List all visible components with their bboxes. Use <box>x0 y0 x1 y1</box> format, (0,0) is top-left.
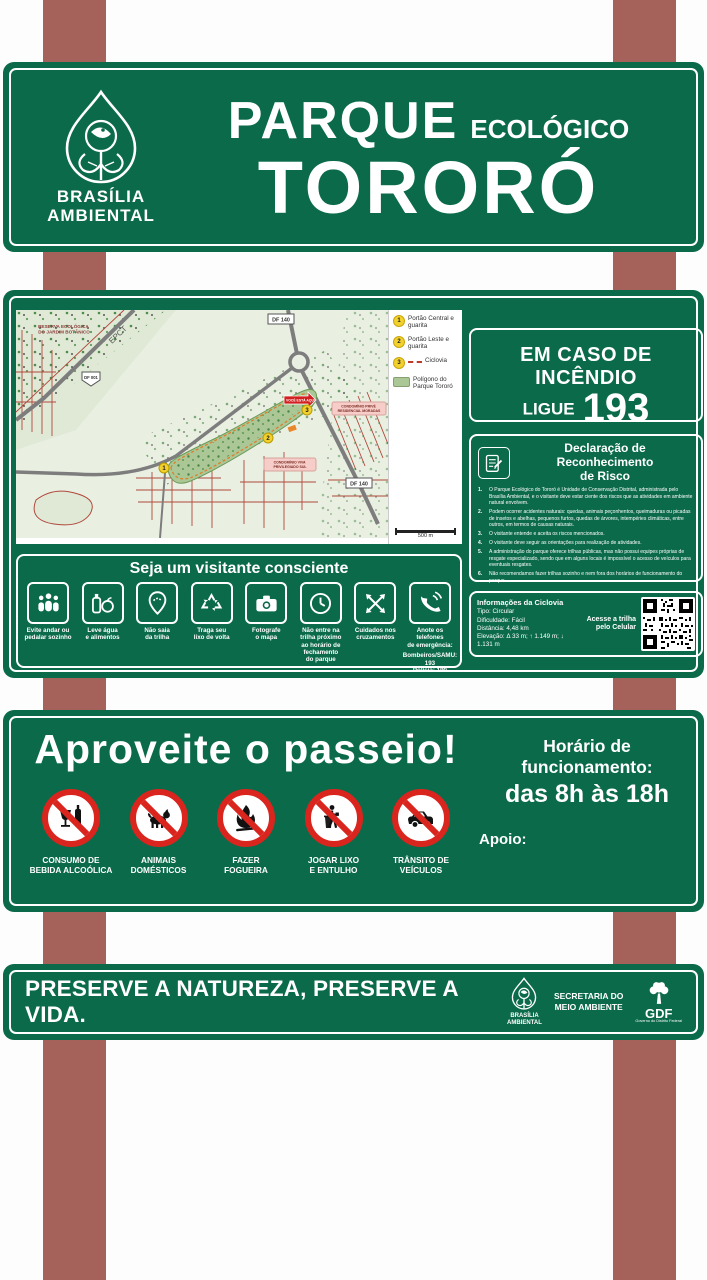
map-scalebar: 500 m <box>395 530 456 539</box>
fire-emergency-title: EM CASO DE INCÊNDIO <box>471 344 701 390</box>
brand-line1: BRASÍLIA <box>47 188 155 207</box>
emergency-number-policia: Polícia: 190 <box>403 667 457 675</box>
df140-badge-top: DF 140 <box>268 314 294 324</box>
enjoy-title: Aproveite o passeio! <box>21 726 471 773</box>
map-legend: 1 Portão Central e guarita 2 Portão Lest… <box>388 310 460 544</box>
rules-panel: Aproveite o passeio! CONSUMO DE BEBIDA A… <box>3 710 704 912</box>
fire-emergency-box: EM CASO DE INCÊNDIO LIGUE193 <box>469 328 703 422</box>
legend-item-portao-central: 1 Portão Central e guarita <box>393 315 457 329</box>
droplet-bird-logo-icon <box>507 977 541 1011</box>
droplet-bird-logo-icon <box>51 88 151 188</box>
park-map: VOCÊ ESTÁ AQUI 1 2 3 RESERVA ECOLÓGICA D… <box>16 310 462 544</box>
recycle-icon <box>198 590 225 617</box>
crossings-icon <box>362 590 389 617</box>
gdf-tagline: Governo do Distrito Federal <box>635 1020 682 1024</box>
tip-crossings: Cuidados nos cruzamentos <box>349 582 401 675</box>
ciclovia-dificuldade: Dificuldade: Fácil <box>477 617 579 625</box>
emergency-number-bombeiros: Bombeiros/SAMU: 193 <box>403 652 457 668</box>
emergency-number: 193 <box>583 386 650 430</box>
info-panel: VOCÊ ESTÁ AQUI 1 2 3 RESERVA ECOLÓGICA D… <box>3 290 704 678</box>
park-title: PARQUE <box>228 92 459 150</box>
legend-marker-3: 3 <box>393 357 405 369</box>
tip-photo-map: Fotografe o mapa <box>240 582 292 675</box>
df140-badge-right: DF 140 <box>346 478 372 488</box>
svg-text:CONDOMÍNIO VIVA PR: CONDOMÍNIO VIVA PRIVILEGIADO SUL <box>273 460 307 469</box>
tip-recycle: Traga seu lixo de volta <box>186 582 238 675</box>
qr-code[interactable] <box>641 597 695 651</box>
ciclovia-tipo: Tipo: Circular <box>477 608 579 616</box>
camera-icon <box>253 590 280 617</box>
footer-brasilia-ambiental-logo: BRASÍLIA AMBIENTAL <box>507 977 542 1027</box>
visitor-tips-title: Seja um visitante consciente <box>22 560 456 578</box>
footer-brand1-label: BRASÍLIA AMBIENTAL <box>507 1013 542 1027</box>
ciclovia-distancia: Distância: 4,48 km <box>477 625 579 633</box>
park-subtitle: ECOLÓGICO <box>470 114 629 144</box>
svg-text:DF 140: DF 140 <box>350 482 368 488</box>
ciclovia-title: Informações da Ciclovia <box>477 598 579 608</box>
support-label: Apoio: <box>479 831 695 848</box>
group-icon <box>35 590 62 617</box>
brasilia-ambiental-logo: BRASÍLIA AMBIENTAL <box>11 88 191 225</box>
svg-text:VOCÊ ESTÁ AQUI: VOCÊ ESTÁ AQUI <box>286 398 315 403</box>
prohibition-pets: ANIMAIS DOMÉSTICOS <box>117 789 201 876</box>
legend-item-ciclovia: 3 Ciclovia <box>393 357 457 369</box>
opening-hours-value: das 8h às 18h <box>479 780 695 809</box>
legend-marker-1: 1 <box>393 315 405 327</box>
declaration-doc-icon <box>478 447 510 479</box>
polygon-swatch <box>393 377 410 387</box>
risk-declaration-box: Declaração de Reconhecimento de Risco 1.… <box>469 434 703 582</box>
preserve-message: PRESERVE A NATUREZA, PRESERVE A VIDA. <box>25 976 495 1028</box>
ciclovia-elevacao: Elevação: Δ 33 m; ↑ 1.149 m; ↓ 1.131 m <box>477 633 579 650</box>
no-pets-icon <box>144 803 174 833</box>
park-name: TORORÓ <box>191 153 666 223</box>
tip-stay-on-trail: Não saia da trilha <box>131 582 183 675</box>
stay-on-trail-icon <box>144 590 171 617</box>
clock-icon <box>307 590 334 617</box>
legend-item-poligono: Polígono do Parque Tororó <box>393 376 457 390</box>
risk-declaration-list: 1.O Parque Ecológico do Tororó é Unidade… <box>478 487 694 584</box>
ciclovia-info-box: Informações da Ciclovia Tipo: Circular D… <box>469 591 703 657</box>
tip-emergency-phones: Anote os telefones de emergência: Bombei… <box>404 582 456 675</box>
brand-line2: AMBIENTAL <box>47 207 155 226</box>
visitor-tips-box: Seja um visitante consciente Evite andar… <box>16 554 462 668</box>
no-fire-icon <box>231 803 261 833</box>
header-panel: BRASÍLIA AMBIENTAL PARQUEECOLÓGICO TOROR… <box>3 62 704 252</box>
dashed-line-sample <box>408 361 422 363</box>
opening-hours-label: Horário de funcionamento: <box>479 736 695 778</box>
risk-declaration-title: Declaração de Reconhecimento de Risco <box>516 442 694 483</box>
reserve-label: RESERVA ECOLÓGICA <box>38 322 89 329</box>
footer-secretaria-label: SECRETARIA DO MEIO AMBIENTE <box>554 991 623 1012</box>
condo-label-right: CONDOMÍNIO PRIVÊ RESIDENCIAL MORADAS <box>332 402 386 415</box>
prohibition-alcohol: CONSUMO DE BEBIDA ALCOÓLICA <box>29 789 113 876</box>
gdf-tree-icon <box>643 980 675 1006</box>
no-vehicles-icon <box>406 803 436 833</box>
prohibition-fire: FAZER FOGUEIRA <box>204 789 288 876</box>
footer-panel: PRESERVE A NATUREZA, PRESERVE A VIDA. BR… <box>3 964 704 1040</box>
tip-closing-time: Não entre na trilha próximo ao horário d… <box>295 582 347 675</box>
no-alcohol-icon <box>56 803 86 833</box>
phone-icon <box>416 590 443 617</box>
svg-text:RESERVA ECOLÓGICA DO: RESERVA ECOLÓGICA DO JARDIM BOTÂNICO <box>38 322 90 334</box>
footer-gdf-logo: GDF Governo do Distrito Federal <box>635 980 682 1024</box>
map-illustration: VOCÊ ESTÁ AQUI 1 2 3 RESERVA ECOLÓGICA D… <box>16 310 388 538</box>
legend-marker-2: 2 <box>393 336 405 348</box>
no-litter-icon <box>319 803 349 833</box>
prohibition-litter: JOGAR LIXO E ENTULHO <box>292 789 376 876</box>
legend-item-portao-leste: 2 Portão Leste e guarita <box>393 336 457 350</box>
tip-group: Evite andar ou pedalar sozinho <box>22 582 74 675</box>
svg-text:DF 001: DF 001 <box>84 375 98 380</box>
prohibition-vehicles: TRÂNSITO DE VEÍCULOS <box>379 789 463 876</box>
water-food-icon <box>89 590 116 617</box>
svg-text:DF 140: DF 140 <box>272 318 290 324</box>
condo-label-mid: CONDOMÍNIO VIVA PRIVILEGIADO SUL <box>264 458 316 471</box>
svg-text:CONDOMÍNIO PRIVÊ R: CONDOMÍNIO PRIVÊ RESIDENCIAL MORADAS <box>338 404 381 413</box>
qr-caption: Acesse a trilha pelo Celular <box>584 616 636 632</box>
call-prefix: LIGUE <box>523 400 575 419</box>
tip-water-food: Leve água e alimentos <box>77 582 129 675</box>
